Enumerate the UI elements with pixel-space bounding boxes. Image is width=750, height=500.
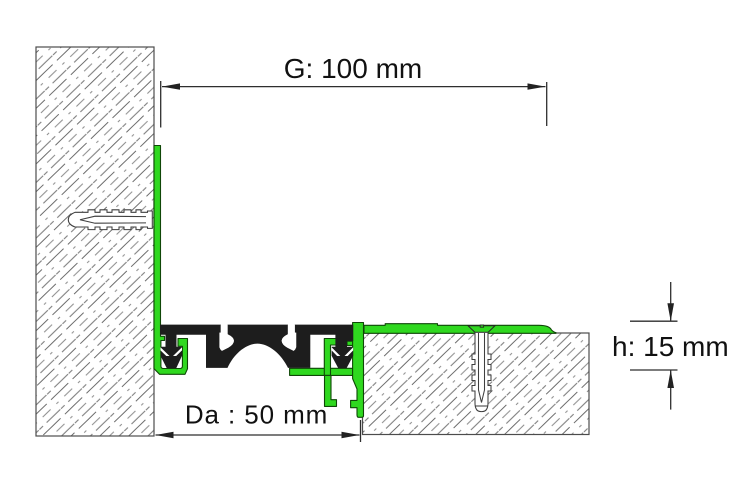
svg-text:Da : 50 mm: Da : 50 mm	[185, 400, 328, 430]
svg-text:h: 15 mm: h: 15 mm	[612, 331, 729, 362]
svg-text:G: 100 mm: G: 100 mm	[284, 53, 422, 84]
